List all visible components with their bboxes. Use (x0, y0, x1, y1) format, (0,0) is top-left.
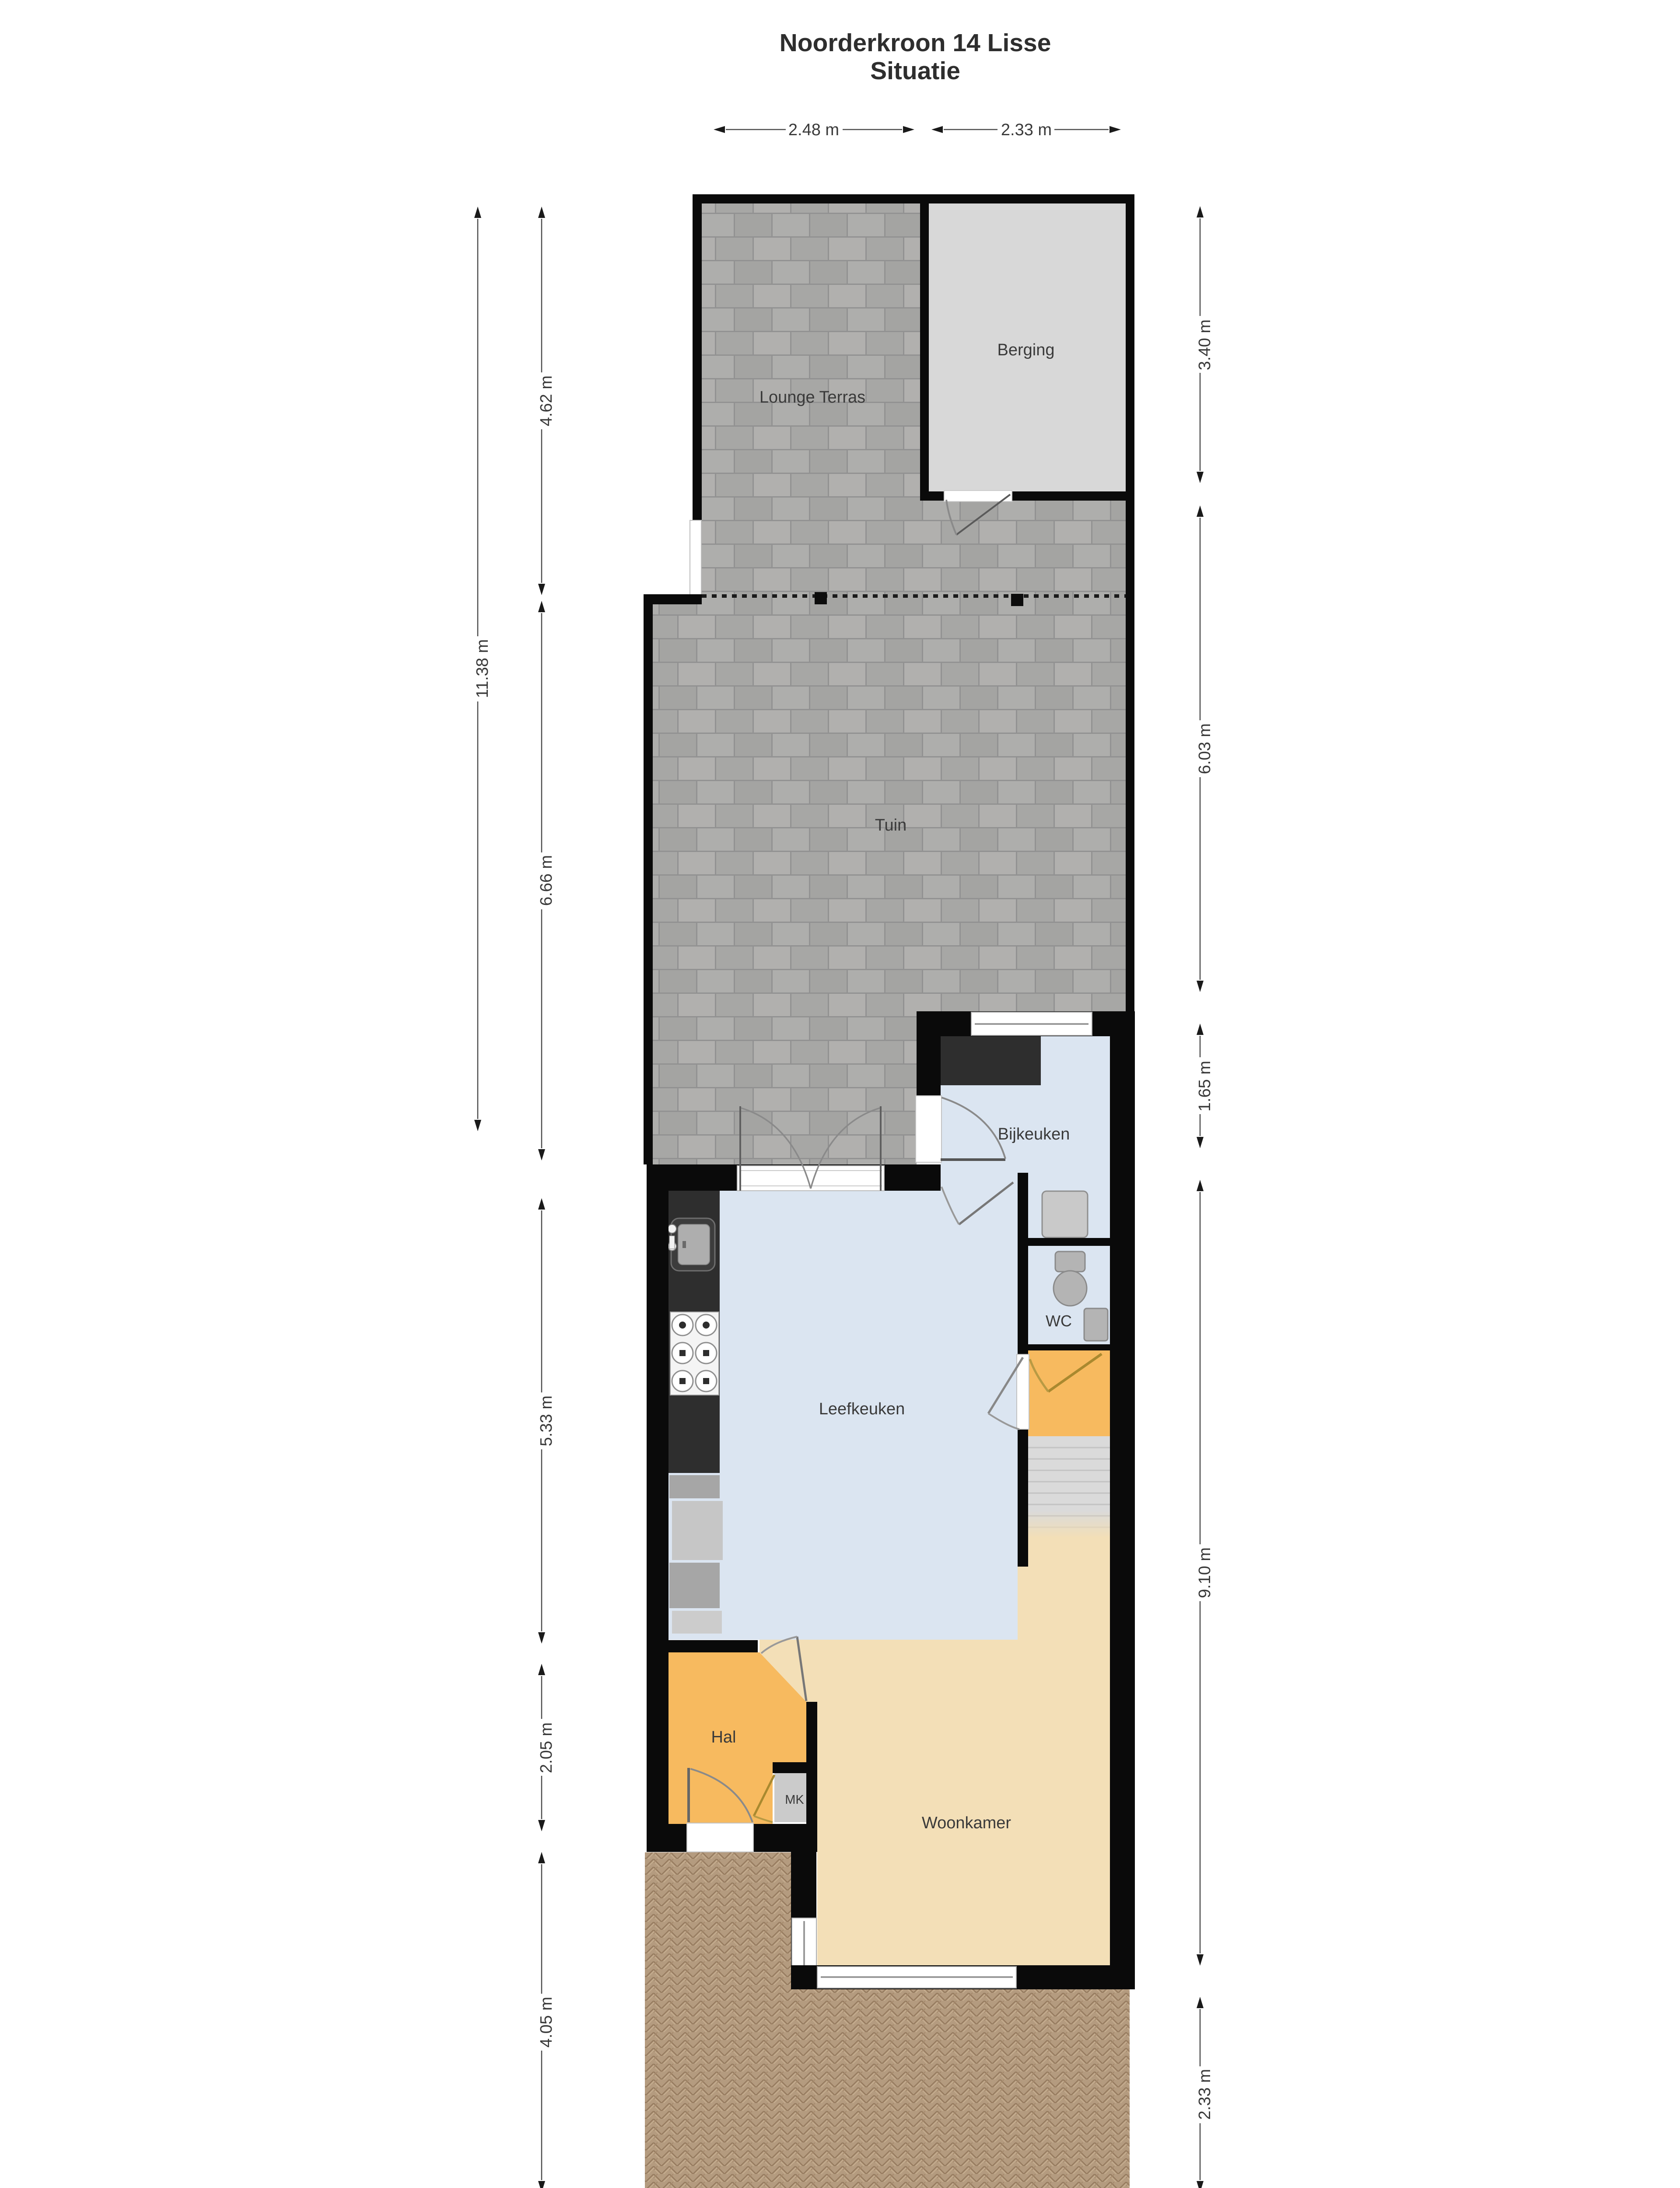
svg-text:2.33 m: 2.33 m (1196, 2069, 1214, 2120)
svg-text:Leefkeuken: Leefkeuken (819, 1400, 905, 1418)
svg-text:WC: WC (1046, 1312, 1072, 1330)
svg-text:1.65 m: 1.65 m (1196, 1061, 1214, 1112)
svg-text:4.05 m: 4.05 m (537, 1997, 556, 2048)
svg-text:2.05 m: 2.05 m (537, 1722, 556, 1773)
svg-text:6.66 m: 6.66 m (537, 855, 556, 906)
svg-text:4.62 m: 4.62 m (537, 375, 556, 426)
svg-text:MK: MK (785, 1793, 804, 1807)
svg-text:Noorderkroon 14 Lisse: Noorderkroon 14 Lisse (780, 29, 1051, 57)
svg-text:2.33 m: 2.33 m (1001, 121, 1052, 139)
svg-text:Bijkeuken: Bijkeuken (998, 1125, 1070, 1143)
svg-text:3.40 m: 3.40 m (1196, 319, 1214, 370)
svg-text:Situatie: Situatie (870, 57, 960, 85)
svg-text:Hal: Hal (711, 1728, 736, 1746)
svg-text:Berging: Berging (997, 341, 1055, 359)
svg-text:Tuin: Tuin (875, 816, 907, 835)
svg-text:Lounge Terras: Lounge Terras (759, 388, 865, 407)
svg-text:6.03 m: 6.03 m (1196, 723, 1214, 774)
svg-text:Woonkamer: Woonkamer (922, 1814, 1011, 1832)
svg-text:9.10 m: 9.10 m (1196, 1547, 1214, 1598)
svg-text:2.48 m: 2.48 m (788, 121, 839, 139)
svg-text:11.38 m: 11.38 m (473, 639, 492, 698)
svg-text:5.33 m: 5.33 m (537, 1396, 556, 1446)
